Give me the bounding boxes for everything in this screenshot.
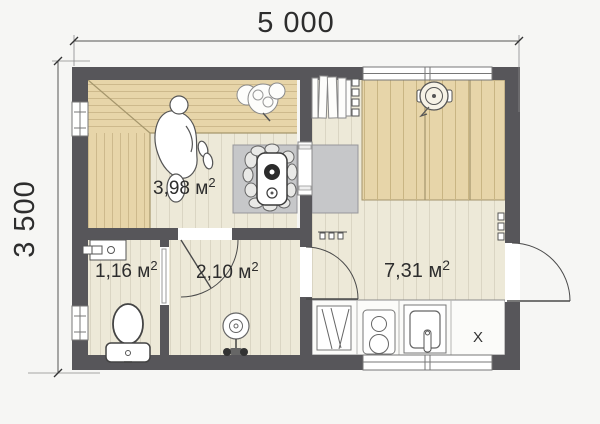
lounge-area-label: 7,31 м2 [384, 257, 450, 282]
window-wc [72, 306, 88, 340]
wc-door-leaf [162, 249, 166, 303]
stove-tunnel [298, 142, 312, 195]
shower-drain [223, 313, 249, 339]
window-steam-room [72, 102, 88, 136]
width-dimension-label: 5 000 [257, 7, 335, 39]
floor-plan-drawing: X [0, 0, 600, 424]
window-bottom [363, 355, 492, 370]
wc-area-label: 1,16 м2 [95, 258, 158, 282]
steam-room-area-label: 3,98 м2 [153, 175, 216, 199]
kitchen-counter: X [312, 300, 505, 355]
firewood-stack [312, 76, 351, 118]
floor-plan-page: X [0, 0, 600, 424]
cooktop [363, 310, 395, 354]
drying-rack [317, 306, 351, 350]
height-dimension-label: 3 500 [9, 180, 41, 258]
window-top [363, 67, 492, 80]
shower-area-label: 2,10 м2 [196, 259, 259, 283]
kitchen-sink [404, 305, 446, 353]
wood-stove [243, 144, 297, 211]
cabinet-x-label: X [473, 329, 483, 346]
